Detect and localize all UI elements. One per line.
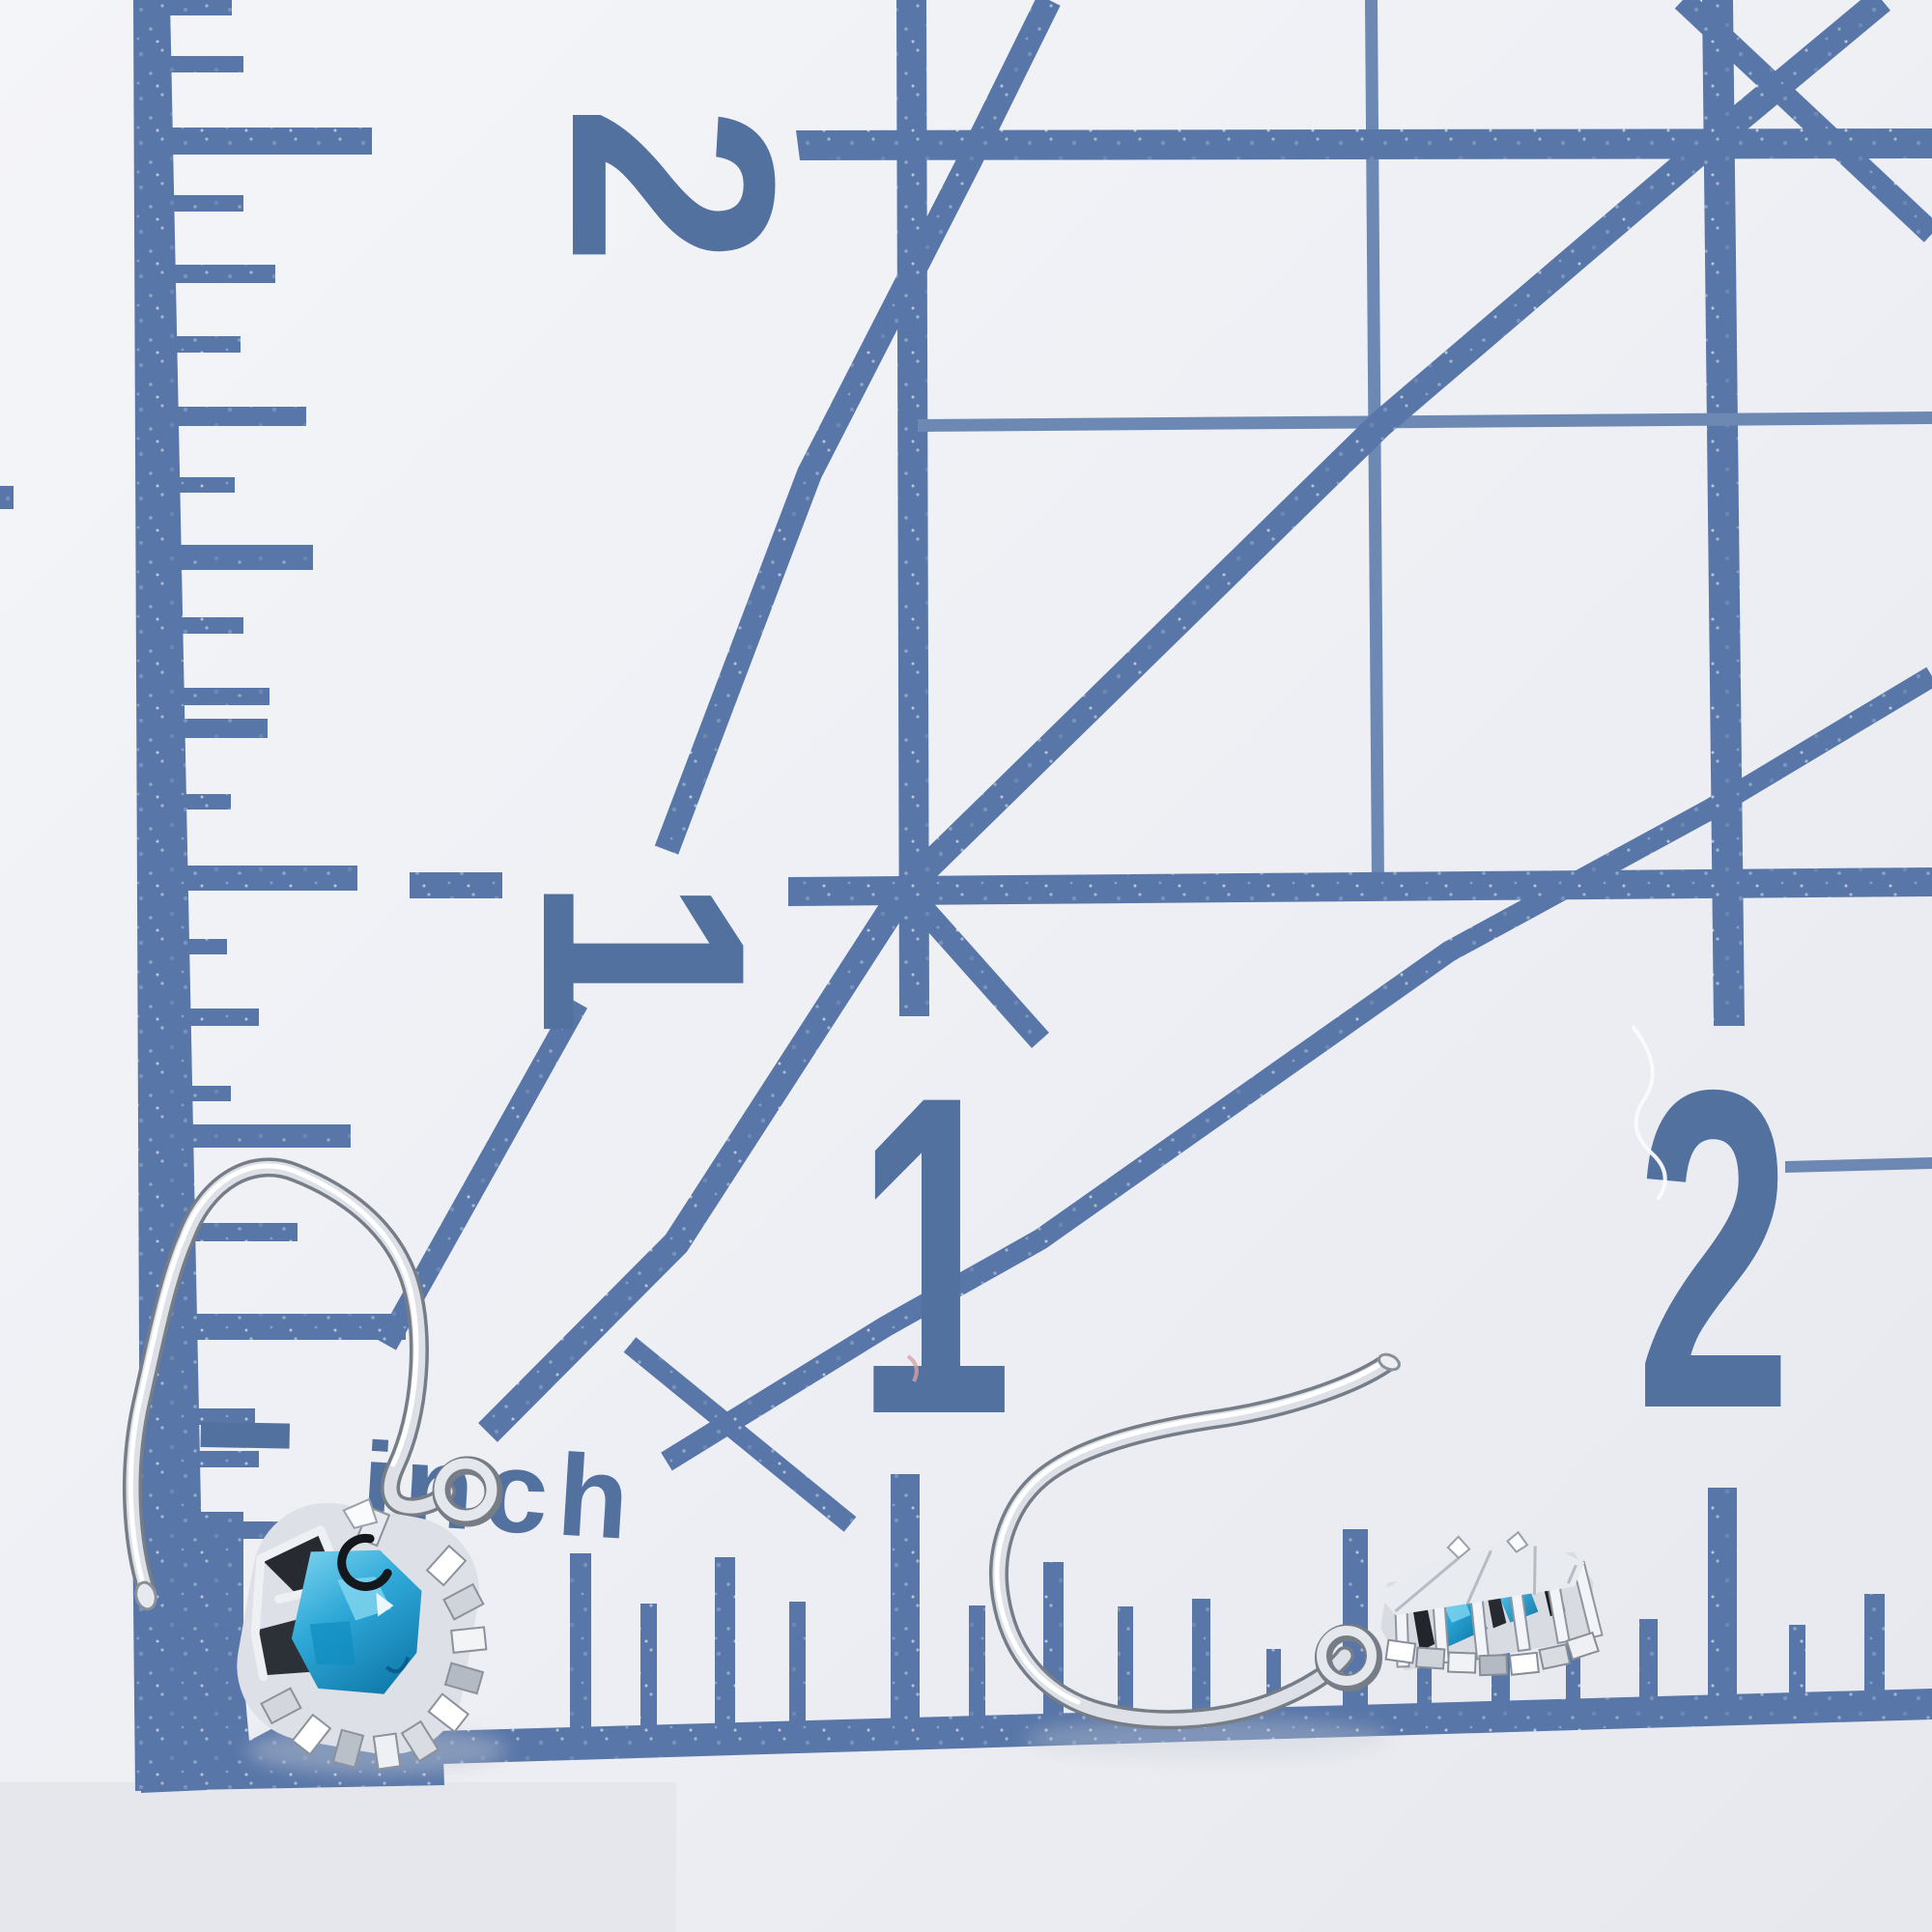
bottom-number-2: 2 [1635,996,1792,1503]
inch-label-dash [201,1422,290,1449]
side-number-2: 2 [511,105,836,267]
side-number-1: 1 [482,876,807,1037]
photo-stage: 2 1 1 2 inch [0,0,1932,1932]
earrings-on-ruler-photo: 2 1 1 2 inch [0,0,1932,1932]
paper-shadow-corner [0,1782,676,1932]
bottom-number-1: 1 [856,1002,1012,1509]
